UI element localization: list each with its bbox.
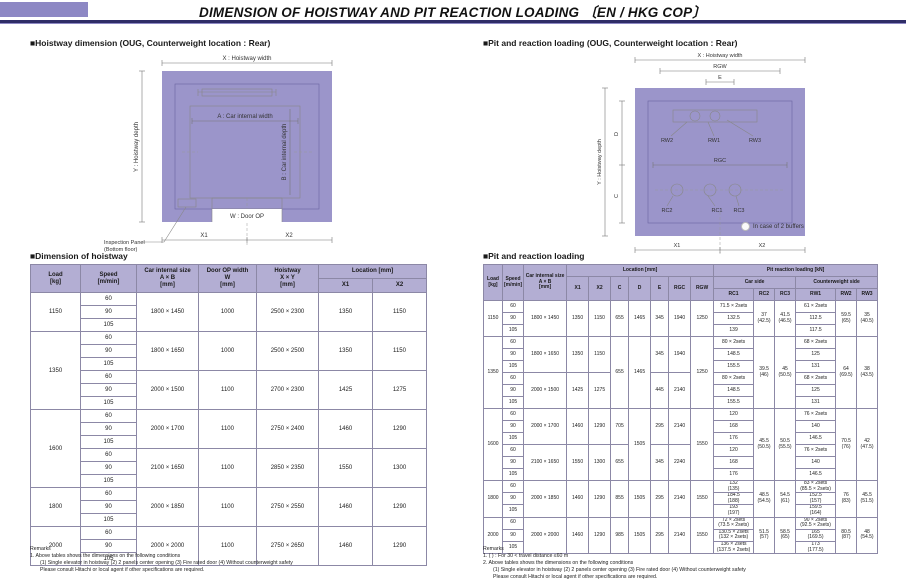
table-cell: 2100 × 1650 bbox=[137, 449, 199, 488]
table-cell: 48(54.5) bbox=[857, 517, 878, 554]
table-cell: 1460 bbox=[319, 527, 373, 566]
buffer-circle-icon bbox=[741, 222, 750, 231]
table-cell: 80 × 2sets bbox=[714, 373, 754, 385]
table-row: 2000602000 × 200014601290985150529521401… bbox=[484, 517, 878, 529]
table-header-cell: Load[kg] bbox=[31, 265, 81, 293]
rgc-label: RGC bbox=[714, 158, 726, 164]
pit-diagram-heading: ■Pit and reaction loading (OUG, Counterw… bbox=[483, 38, 737, 48]
table-cell: 1800 × 1450 bbox=[524, 301, 567, 337]
hoistway-dimension-section: ■Hoistway dimension (OUG, Counterweight … bbox=[30, 38, 454, 583]
hoistway-plan-svg: X : Hoistway width A : Car internal widt… bbox=[102, 52, 382, 257]
table-cell: 345 bbox=[651, 445, 669, 481]
table-cell: 90 bbox=[81, 384, 137, 397]
pit-reaction-section: ■Pit and reaction loading (OUG, Counterw… bbox=[483, 38, 903, 583]
table-cell: 105 bbox=[503, 469, 524, 481]
table-cell: 345 bbox=[651, 337, 669, 373]
table-cell: 1800 bbox=[31, 488, 81, 527]
table-cell: 159.5(164) bbox=[796, 505, 836, 517]
table-cell: 120 bbox=[714, 445, 754, 457]
table-cell: 176 bbox=[714, 433, 754, 445]
table-cell: 45(50.5) bbox=[775, 337, 796, 409]
table-cell: 60 bbox=[81, 449, 137, 462]
car-internal-width-label: A : Car internal width bbox=[217, 114, 272, 120]
table-cell: 1550 bbox=[319, 449, 373, 488]
table-cell: 1250 bbox=[691, 301, 714, 337]
table-cell: 90 bbox=[503, 421, 524, 433]
table-header-cell: RC3 bbox=[775, 289, 796, 301]
table-cell: 60 bbox=[81, 410, 137, 423]
table-cell: 140 bbox=[796, 421, 836, 433]
table-cell: 1350 bbox=[567, 301, 589, 337]
hoistway-table-heading: ■Dimension of hoistway bbox=[30, 251, 128, 261]
table-cell: 146.5 bbox=[796, 433, 836, 445]
table-cell: 105 bbox=[503, 505, 524, 517]
table-header-cell: Door OP widthW[mm] bbox=[199, 265, 257, 293]
table-cell: 105 bbox=[81, 397, 137, 410]
hoistway-width-label: X : Hoistway width bbox=[222, 56, 271, 62]
table-cell: 1150 bbox=[31, 293, 81, 332]
pit-plan-diagram: X : Hoistway width RGW E RW2 bbox=[483, 52, 903, 252]
table-cell: 1100 bbox=[199, 371, 257, 410]
table-cell: 655 bbox=[611, 337, 629, 409]
table-cell: 54.5(61) bbox=[775, 481, 796, 518]
rw3-label: RW3 bbox=[749, 138, 761, 144]
table-header-cell: C bbox=[611, 277, 629, 301]
table-header-cell: Pit reaction loading [kN] bbox=[714, 265, 878, 277]
table-cell: 345 bbox=[651, 301, 669, 337]
table-cell: 1000 bbox=[199, 332, 257, 371]
table-cell: 148.5 bbox=[714, 349, 754, 361]
table-cell: 1550 bbox=[567, 445, 589, 481]
x1-label: X1 bbox=[674, 243, 681, 249]
pit-reaction-table: Load[kg]Speed[m/min]Car internal sizeA ×… bbox=[483, 264, 878, 554]
table-cell: 105 bbox=[81, 436, 137, 449]
table-cell: 1800 × 1650 bbox=[137, 332, 199, 371]
table-header-cell: Car internal sizeA × B[mm] bbox=[524, 265, 567, 301]
table-cell: 2750 × 2400 bbox=[257, 410, 319, 449]
remarks-line: Remarks bbox=[483, 546, 746, 553]
table-cell: 125 bbox=[796, 385, 836, 397]
table-cell: 1100 bbox=[199, 488, 257, 527]
x1-label: X1 bbox=[200, 233, 208, 239]
table-header-cell: Speed[m/min] bbox=[81, 265, 137, 293]
hoistway-plan-diagram: X : Hoistway width A : Car internal widt… bbox=[30, 52, 454, 252]
table-cell: 70.5(76) bbox=[836, 409, 857, 481]
table-header-cell: D bbox=[629, 277, 651, 301]
table-cell: 2240 bbox=[669, 445, 691, 481]
rw2-label: RW2 bbox=[661, 138, 673, 144]
table-cell: 90 bbox=[503, 385, 524, 397]
rc1-label: RC1 bbox=[711, 208, 722, 214]
table-cell: 165(169.5) bbox=[796, 529, 836, 541]
table-cell: 1550 bbox=[691, 481, 714, 518]
table-row: 602000 × 150011002700 × 230014251275 bbox=[31, 371, 427, 384]
table-cell: 125 bbox=[796, 349, 836, 361]
table-cell: 2000 × 1850 bbox=[137, 488, 199, 527]
pit-remarks: Remarks 1. ( ) : For 30 < travel distanc… bbox=[483, 546, 746, 581]
table-cell: 140 bbox=[796, 457, 836, 469]
table-cell: 59.5(65) bbox=[836, 301, 857, 337]
table-cell: 184.5(188) bbox=[714, 493, 754, 505]
table-cell: 83 × 2sets(85.5 × 2sets) bbox=[796, 481, 836, 493]
table-cell: 105 bbox=[503, 361, 524, 373]
table-cell: 90 bbox=[503, 457, 524, 469]
table-cell: 58.5(65) bbox=[775, 517, 796, 554]
table-cell: 105 bbox=[503, 325, 524, 337]
table-row: 602100 × 165011002850 × 235015501300 bbox=[31, 449, 427, 462]
table-cell: 1425 bbox=[567, 373, 589, 409]
table-cell: 105 bbox=[503, 397, 524, 409]
table-cell: 131 bbox=[796, 397, 836, 409]
table-cell: 132.5 bbox=[714, 313, 754, 325]
table-cell: 1940 bbox=[669, 301, 691, 337]
table-cell: 2100 × 1650 bbox=[524, 445, 567, 481]
hoistway-diagram-heading: ■Hoistway dimension (OUG, Counterweight … bbox=[30, 38, 270, 48]
table-cell: 90 bbox=[81, 306, 137, 319]
page-title: DIMENSION OF HOISTWAY AND PIT REACTION L… bbox=[95, 1, 810, 21]
table-header-cell: RGC bbox=[669, 277, 691, 301]
table-cell: 90 bbox=[81, 423, 137, 436]
catalog-page: DIMENSION OF HOISTWAY AND PIT REACTION L… bbox=[0, 0, 906, 583]
table-cell: 1290 bbox=[589, 409, 611, 445]
table-cell: 1800 bbox=[484, 481, 503, 518]
table-cell: 105 bbox=[81, 358, 137, 371]
table-cell: 90 bbox=[81, 501, 137, 514]
table-cell: 1460 bbox=[319, 488, 373, 527]
table-row: 1800602000 × 185014601290855150529521401… bbox=[484, 481, 878, 493]
table-cell: 35(40.5) bbox=[857, 301, 878, 337]
table-header-cell: Car internal sizeA × B[mm] bbox=[137, 265, 199, 293]
table-header-cell: RC2 bbox=[754, 289, 775, 301]
table-cell: 1505 bbox=[629, 409, 651, 481]
remarks-line: (1) Single elevator in hoistway (2) 2 pa… bbox=[493, 567, 746, 574]
inspection-panel-label-1: Inspection Panel bbox=[104, 240, 145, 246]
e-label: E bbox=[718, 75, 722, 81]
table-header-cell: Counterweight side bbox=[796, 277, 878, 289]
table-cell: 1350 bbox=[319, 332, 373, 371]
table-cell: 2500 × 2500 bbox=[257, 332, 319, 371]
table-header-row: Load[kg]Speed[m/min]Car internal sizeA ×… bbox=[484, 265, 878, 277]
table-cell: 90 bbox=[503, 529, 524, 541]
car-internal-depth-label: B : Car internal depth bbox=[282, 124, 288, 181]
table-row: 602100 × 165015501300655345224012076 × 2… bbox=[484, 445, 878, 457]
table-cell: 60 bbox=[503, 409, 524, 421]
table-cell: 1290 bbox=[589, 481, 611, 518]
table-cell: 105 bbox=[81, 475, 137, 488]
table-header-cell: Speed[m/min] bbox=[503, 265, 524, 301]
table-header-cell: X1 bbox=[567, 277, 589, 301]
table-cell: 168 bbox=[714, 457, 754, 469]
table-cell: 1465 bbox=[629, 337, 651, 409]
table-header-cell: Load[kg] bbox=[484, 265, 503, 301]
table-cell: 2140 bbox=[669, 373, 691, 409]
table-cell: 168 bbox=[714, 421, 754, 433]
table-header-cell: HoistwayX × Y[mm] bbox=[257, 265, 319, 293]
table-cell: 2700 × 2300 bbox=[257, 371, 319, 410]
table-header-cell: Location [mm] bbox=[319, 265, 427, 279]
table-cell: 155.5 bbox=[714, 397, 754, 409]
buffers-legend-text: In case of 2 buffers bbox=[753, 224, 804, 230]
door-op-label: W : Door OP bbox=[230, 214, 264, 220]
table-cell: 90 bbox=[81, 462, 137, 475]
table-cell: 1350 bbox=[319, 293, 373, 332]
table-row: 1150601800 × 145010002500 × 230013501150 bbox=[31, 293, 427, 306]
table-cell: 112.5 bbox=[796, 313, 836, 325]
table-cell: 105 bbox=[81, 514, 137, 527]
table-cell: 1275 bbox=[373, 371, 427, 410]
table-cell: 1425 bbox=[319, 371, 373, 410]
x2-label: X2 bbox=[285, 233, 293, 239]
table-row: 602000 × 150014251275445214080 × 2sets68… bbox=[484, 373, 878, 385]
d-label: D bbox=[614, 132, 620, 136]
table-cell: 90 bbox=[81, 345, 137, 358]
table-cell: 2000 × 1700 bbox=[137, 410, 199, 449]
table-cell: 39.5(46) bbox=[754, 337, 775, 409]
hoistway-dimension-table: Load[kg]Speed[m/min]Car internal sizeA ×… bbox=[30, 264, 427, 566]
table-cell: 176 bbox=[714, 469, 754, 481]
data-table: Load[kg]Speed[m/min]Car internal sizeA ×… bbox=[30, 264, 427, 566]
pit-table-heading: ■Pit and reaction loading bbox=[483, 251, 584, 261]
table-cell: 105 bbox=[503, 433, 524, 445]
rc2-label: RC2 bbox=[661, 208, 672, 214]
remarks-line: 1. ( ) : For 30 < travel distance ≤60 m bbox=[483, 553, 746, 560]
table-cell: 193(197) bbox=[714, 505, 754, 517]
header-rule bbox=[0, 20, 906, 24]
table-cell: 51.5(57) bbox=[754, 517, 775, 554]
table-cell: 1290 bbox=[373, 410, 427, 449]
table-cell: 131 bbox=[796, 361, 836, 373]
table-cell: 1350 bbox=[567, 337, 589, 373]
table-cell: 80.5(87) bbox=[836, 517, 857, 554]
pit-plan-svg: X : Hoistway width RGW E RW2 bbox=[575, 52, 845, 262]
table-cell: 42(47.5) bbox=[857, 409, 878, 481]
table-cell: 1275 bbox=[589, 373, 611, 409]
table-cell: 1460 bbox=[567, 481, 589, 518]
table-row: 1150601800 × 145013501150655146534519401… bbox=[484, 301, 878, 313]
table-cell: 2750 × 2550 bbox=[257, 488, 319, 527]
table-header-cell: RW1 bbox=[796, 289, 836, 301]
table-cell: 855 bbox=[611, 481, 629, 518]
table-cell: 1600 bbox=[484, 409, 503, 481]
table-cell: 155.5 bbox=[714, 361, 754, 373]
table-cell: 2850 × 2350 bbox=[257, 449, 319, 488]
table-cell: 1800 × 1650 bbox=[524, 337, 567, 373]
table-header-cell: X2 bbox=[373, 279, 427, 293]
table-cell: 60 bbox=[503, 301, 524, 313]
table-cell: 60 bbox=[503, 481, 524, 493]
table-header-cell: RW2 bbox=[836, 289, 857, 301]
table-cell: 1465 bbox=[629, 301, 651, 337]
table-cell: 76 × 2sets bbox=[796, 445, 836, 457]
hoistway-remarks: Remarks 1. Above tables shows the dimens… bbox=[30, 546, 293, 574]
table-cell: 1300 bbox=[589, 445, 611, 481]
table-row: 2000602000 × 200011002750 × 265014601290 bbox=[31, 527, 427, 540]
table-header-cell: RC1 bbox=[714, 289, 754, 301]
table-cell: 2000 × 1500 bbox=[137, 371, 199, 410]
table-cell: 1150 bbox=[589, 337, 611, 373]
hoistway-depth-label: Y : Hoistway depth bbox=[134, 122, 140, 172]
table-cell: 60 bbox=[81, 293, 137, 306]
remarks-line: Please consult Hitachi or local agent if… bbox=[40, 567, 293, 574]
table-cell: 445 bbox=[651, 373, 669, 409]
table-cell: 1460 bbox=[567, 409, 589, 445]
table-cell: 105 bbox=[81, 319, 137, 332]
table-cell: 2140 bbox=[669, 409, 691, 445]
table-cell: 1940 bbox=[669, 337, 691, 373]
table-cell: 295 bbox=[651, 481, 669, 518]
table-cell: 61 × 2sets bbox=[796, 301, 836, 313]
table-cell: 1550 bbox=[691, 409, 714, 481]
table-cell: 1460 bbox=[319, 410, 373, 449]
table-cell: 173(177.5) bbox=[796, 541, 836, 553]
table-cell: 60 bbox=[81, 371, 137, 384]
table-cell: 50.5(55.5) bbox=[775, 409, 796, 481]
table-header-cell: X2 bbox=[589, 277, 611, 301]
remarks-line: 2. Above tables shows the dimensions on … bbox=[483, 560, 746, 567]
table-cell: 1100 bbox=[199, 410, 257, 449]
table-header-cell: RGW bbox=[691, 277, 714, 301]
table-cell: 60 bbox=[503, 517, 524, 529]
table-cell: 1250 bbox=[691, 337, 714, 409]
table-cell: 120 bbox=[714, 409, 754, 421]
table-cell: 72 × 2sets(73.5 × 2sets) bbox=[714, 517, 754, 529]
table-cell: 76 × 2sets bbox=[796, 409, 836, 421]
table-cell: 1800 × 1450 bbox=[137, 293, 199, 332]
table-row: 1350601800 × 165010002500 × 250013501150 bbox=[31, 332, 427, 345]
table-cell: 152.5(157) bbox=[796, 493, 836, 505]
table-cell: 117.5 bbox=[796, 325, 836, 337]
table-cell: 1150 bbox=[484, 301, 503, 337]
table-cell: 2000 × 1700 bbox=[524, 409, 567, 445]
rw1-label: RW1 bbox=[708, 138, 720, 144]
table-cell: 132(135) bbox=[714, 481, 754, 493]
remarks-line: 1. Above tables shows the dimensions on … bbox=[30, 553, 293, 560]
table-header-row: Load[kg]Speed[m/min]Car internal sizeA ×… bbox=[31, 265, 427, 279]
hoistway-depth-label: Y : Hoistway depth bbox=[597, 139, 603, 185]
table-cell: 90 bbox=[503, 349, 524, 361]
table-row: 1350601800 × 165013501150655146534519401… bbox=[484, 337, 878, 349]
table-cell: 1505 bbox=[629, 481, 651, 518]
table-cell: 45.5(51.5) bbox=[857, 481, 878, 518]
table-cell: 1290 bbox=[373, 527, 427, 566]
table-cell: 1000 bbox=[199, 293, 257, 332]
table-cell: 1350 bbox=[31, 332, 81, 410]
table-header-cell: X1 bbox=[319, 279, 373, 293]
table-cell: 80 × 2sets bbox=[714, 337, 754, 349]
table-cell: 1300 bbox=[373, 449, 427, 488]
table-cell: 64(69.5) bbox=[836, 337, 857, 409]
table-cell: 68 × 2sets bbox=[796, 373, 836, 385]
table-cell: 60 bbox=[81, 332, 137, 345]
table-cell: 705 bbox=[611, 409, 629, 445]
table-cell: 76(83) bbox=[836, 481, 857, 518]
table-cell: 90 bbox=[503, 493, 524, 505]
table-cell: 38(43.5) bbox=[857, 337, 878, 409]
table-cell: 41.5(46.5) bbox=[775, 301, 796, 337]
table-cell: 90 × 2sets(92.5 × 2sets) bbox=[796, 517, 836, 529]
data-table: Load[kg]Speed[m/min]Car internal sizeA ×… bbox=[483, 264, 878, 554]
c-label: C bbox=[614, 194, 620, 198]
table-cell: 1150 bbox=[589, 301, 611, 337]
hoistway-width-label: X : Hoistway width bbox=[698, 53, 743, 59]
table-row: 1600602000 × 170014601290705150529521401… bbox=[484, 409, 878, 421]
table-header-cell: E bbox=[651, 277, 669, 301]
table-cell: 60 bbox=[503, 373, 524, 385]
table-row: 1800602000 × 185011002750 × 255014601290 bbox=[31, 488, 427, 501]
table-cell: 60 bbox=[503, 445, 524, 457]
table-row: 1600602000 × 170011002750 × 240014601290 bbox=[31, 410, 427, 423]
buffers-legend: In case of 2 buffers bbox=[741, 222, 804, 231]
table-cell: 2000 × 1850 bbox=[524, 481, 567, 518]
table-cell: 139 bbox=[714, 325, 754, 337]
table-cell: 48.5(54.5) bbox=[754, 481, 775, 518]
table-cell: 130.5 × 2sets(132 × 2sets) bbox=[714, 529, 754, 541]
remarks-line: Remarks bbox=[30, 546, 293, 553]
rc3-label: RC3 bbox=[733, 208, 744, 214]
remarks-line: Please consult Hitachi or local agent if… bbox=[493, 574, 746, 581]
table-cell: 148.5 bbox=[714, 385, 754, 397]
table-cell: 90 bbox=[503, 313, 524, 325]
table-cell: 60 bbox=[81, 488, 137, 501]
table-cell: 60 bbox=[81, 527, 137, 540]
table-cell: 45.5(50.5) bbox=[754, 409, 775, 481]
table-cell: 2500 × 2300 bbox=[257, 293, 319, 332]
table-cell: 1290 bbox=[373, 488, 427, 527]
table-cell: 37(42.5) bbox=[754, 301, 775, 337]
table-header-cell: RW3 bbox=[857, 289, 878, 301]
table-cell: 2140 bbox=[669, 481, 691, 518]
table-cell: 655 bbox=[611, 445, 629, 481]
header-accent-bar bbox=[0, 2, 88, 17]
table-cell: 1150 bbox=[373, 332, 427, 371]
table-header-cell: Car side bbox=[714, 277, 796, 289]
remarks-line: (1) Single elevator in hoistway (2) 2 pa… bbox=[40, 560, 293, 567]
table-cell: 1100 bbox=[199, 449, 257, 488]
table-cell: 1150 bbox=[373, 293, 427, 332]
table-cell: 655 bbox=[611, 301, 629, 337]
table-header-cell: Location [mm] bbox=[567, 265, 714, 277]
table-cell: 295 bbox=[651, 409, 669, 445]
table-cell: 146.5 bbox=[796, 469, 836, 481]
table-cell: 1350 bbox=[484, 337, 503, 409]
table-cell: 2000 × 1500 bbox=[524, 373, 567, 409]
table-cell: 1600 bbox=[31, 410, 81, 488]
x2-label: X2 bbox=[759, 243, 766, 249]
table-cell: 60 bbox=[503, 337, 524, 349]
table-cell: 68 × 2sets bbox=[796, 337, 836, 349]
rgw-label: RGW bbox=[713, 64, 727, 70]
table-cell: 71.5 × 2sets bbox=[714, 301, 754, 313]
